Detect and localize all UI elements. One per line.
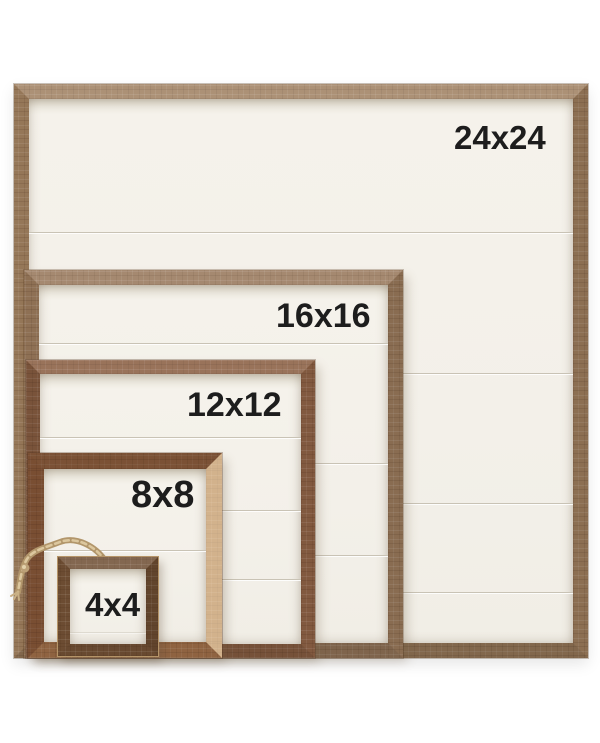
shiplap-seam: [29, 232, 573, 233]
shiplap-seam: [70, 632, 146, 633]
shiplap-seam: [40, 437, 301, 438]
size-label-4x4: 4x4: [85, 588, 140, 621]
shiplap-seam: [39, 343, 388, 344]
size-label-24x24: 24x24: [454, 121, 546, 154]
size-label-12x12: 12x12: [187, 388, 282, 422]
product-photo: 24x24 16x16 12x12 8x8 4x4: [0, 0, 600, 743]
size-label-16x16: 16x16: [276, 299, 371, 333]
size-label-8x8: 8x8: [131, 476, 194, 514]
